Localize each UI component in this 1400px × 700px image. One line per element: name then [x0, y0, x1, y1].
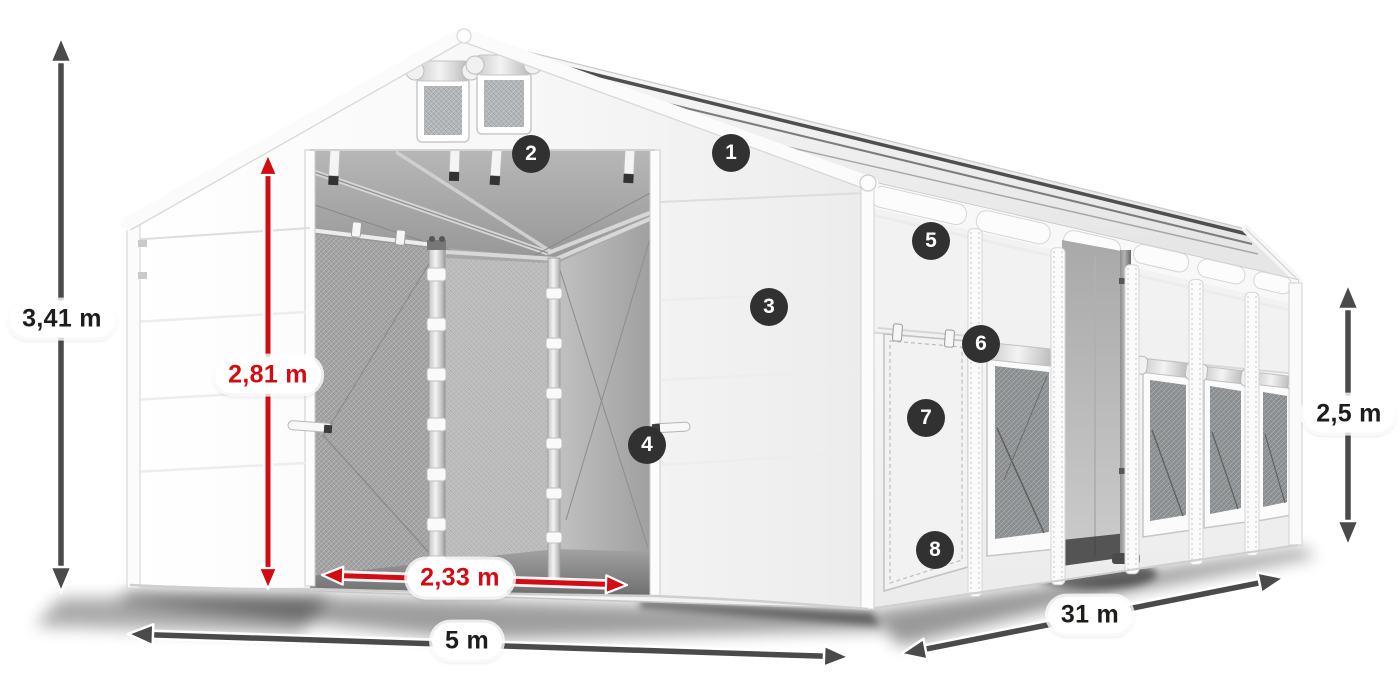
dimension-label-side-height: 2,5 m: [1303, 396, 1394, 433]
dimension-label-length: 31 m: [1048, 597, 1132, 634]
tent-illustration: [0, 0, 1400, 700]
front-corner-pole: [861, 181, 874, 609]
side-window-3: [1196, 364, 1252, 528]
marker-3[interactable]: 3: [750, 288, 788, 326]
dimension-label-door-height: 2,81 m: [215, 357, 321, 394]
dimension-label-door-width: 2,33 m: [407, 560, 513, 597]
entrance-mesh-panel-left: [310, 222, 434, 588]
marker-6[interactable]: 6: [962, 325, 1000, 363]
marker-2[interactable]: 2: [512, 135, 550, 173]
marker-7[interactable]: 7: [907, 399, 945, 437]
rear-corner-pole: [1289, 283, 1302, 545]
dimension-label-total-height: 3,41 m: [9, 301, 115, 338]
tent-dimension-diagram: 3,41 m 2,81 m 2,33 m 5 m 31 m 2,5 m 1 2 …: [0, 0, 1400, 700]
marker-1[interactable]: 1: [712, 134, 750, 172]
marker-5[interactable]: 5: [912, 222, 950, 260]
vent-window-1: [406, 61, 480, 142]
side-window-2: [1135, 356, 1198, 537]
dimension-label-width: 5 m: [432, 623, 502, 660]
marker-8[interactable]: 8: [916, 531, 954, 569]
front-entrance-opening: [305, 150, 660, 596]
marker-4[interactable]: 4: [628, 426, 666, 464]
